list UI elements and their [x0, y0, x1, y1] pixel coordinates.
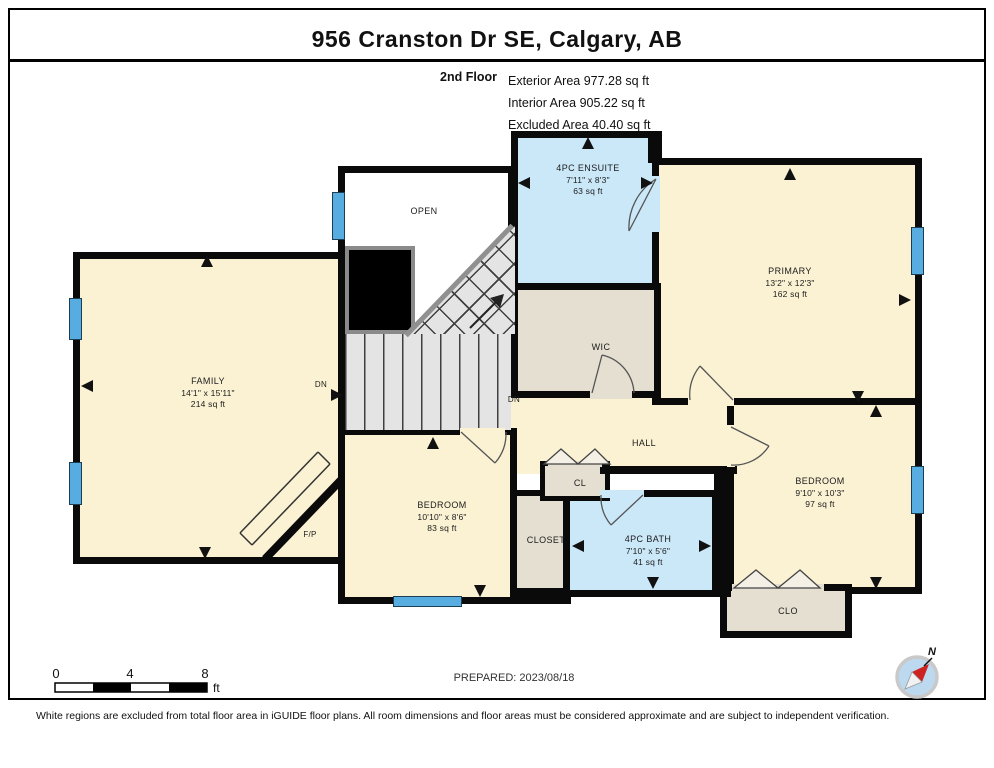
page-title: 956 Cranston Dr SE, Calgary, AB: [0, 26, 994, 53]
exterior-area: Exterior Area 977.28 sq ft: [508, 70, 758, 92]
compass-north-label: N: [928, 646, 936, 658]
door-gap-wic: [590, 391, 632, 399]
window: [69, 462, 82, 505]
label-open: OPEN: [410, 206, 437, 218]
window: [332, 192, 345, 240]
label-cl: CL: [574, 478, 586, 490]
wall-closet-bottom: [511, 590, 571, 604]
label-bedroom-right: BEDROOM 9'10" x 10'3" 97 sq ft: [795, 476, 844, 510]
door-gap-ensuite: [652, 176, 660, 232]
label-bedroom-left: BEDROOM 10'10" x 8'6" 83 sq ft: [417, 500, 466, 534]
scale-tick-8: 8: [201, 666, 208, 681]
floor-plan-page: 956 Cranston Dr SE, Calgary, AB 2nd Floo…: [0, 0, 994, 768]
scale-unit: ft: [213, 681, 220, 695]
label-wic: WIC: [592, 342, 611, 354]
door-gap-bedroom-right: [727, 425, 735, 467]
room-wic: [511, 283, 661, 398]
label-dn-2: DN: [508, 395, 520, 405]
door-gap-bedroom-left: [460, 428, 505, 436]
scale-tick-0: 0: [52, 666, 59, 681]
label-family: FAMILY 14'1" x 15'11" 214 sq ft: [181, 376, 235, 410]
interior-area: Interior Area 905.22 sq ft: [508, 92, 758, 114]
scale-tick-4: 4: [126, 666, 133, 681]
stair-void: [345, 246, 415, 334]
wall-junction: [648, 131, 662, 163]
label-fireplace: F/P: [303, 530, 316, 540]
label-closet: CLOSET: [527, 535, 565, 547]
wall-bath-bedroom: [714, 466, 731, 597]
label-bath: 4PC BATH 7'10" x 5'6" 41 sq ft: [625, 534, 672, 568]
room-ensuite: [511, 131, 659, 290]
window: [911, 466, 924, 514]
window: [911, 227, 924, 275]
window: [393, 596, 462, 607]
label-clo: CLO: [778, 606, 798, 618]
label-dn-1: DN: [315, 380, 327, 390]
door-gap-primary: [688, 398, 734, 406]
stairs-lower-run: [345, 334, 511, 430]
title-divider: [8, 59, 986, 62]
floor-areas: Exterior Area 977.28 sq ft Interior Area…: [508, 70, 758, 136]
label-ensuite: 4PC ENSUITE 7'11" x 8'3" 63 sq ft: [556, 163, 619, 197]
door-gap-cl: [548, 461, 602, 467]
door-gap-clo: [732, 584, 824, 592]
prepared-date: PREPARED: 2023/08/18: [399, 672, 629, 684]
window: [69, 298, 82, 340]
door-gap-bath: [600, 490, 644, 498]
label-hall: HALL: [632, 438, 656, 450]
label-primary: PRIMARY 13'2" x 12'3" 162 sq ft: [765, 266, 814, 300]
disclaimer-text: White regions are excluded from total fl…: [36, 710, 986, 722]
floor-name: 2nd Floor: [330, 70, 497, 84]
